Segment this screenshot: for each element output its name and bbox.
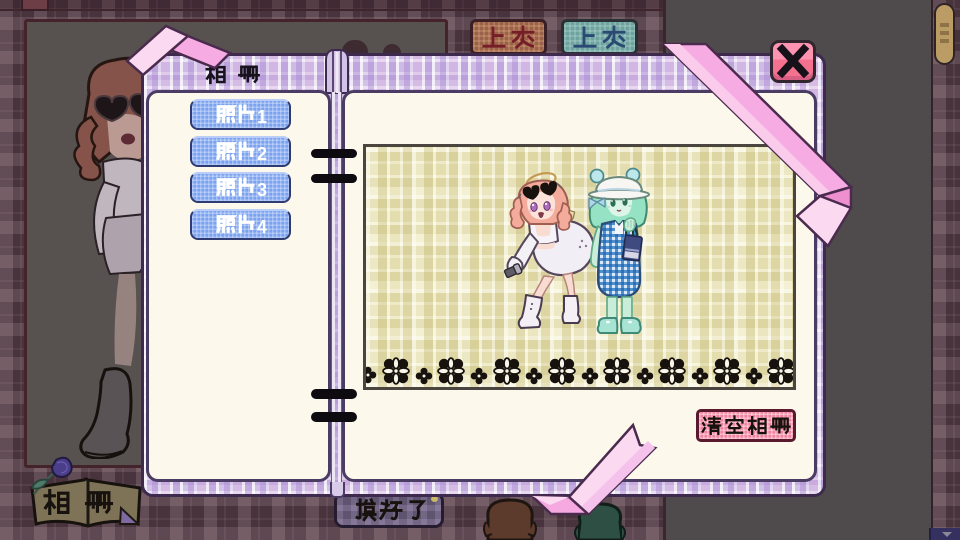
svg-text:1: 1 (257, 107, 267, 127)
svg-text:2: 2 (257, 144, 267, 164)
svg-text:4: 4 (257, 217, 267, 237)
svg-text:3: 3 (257, 180, 267, 200)
